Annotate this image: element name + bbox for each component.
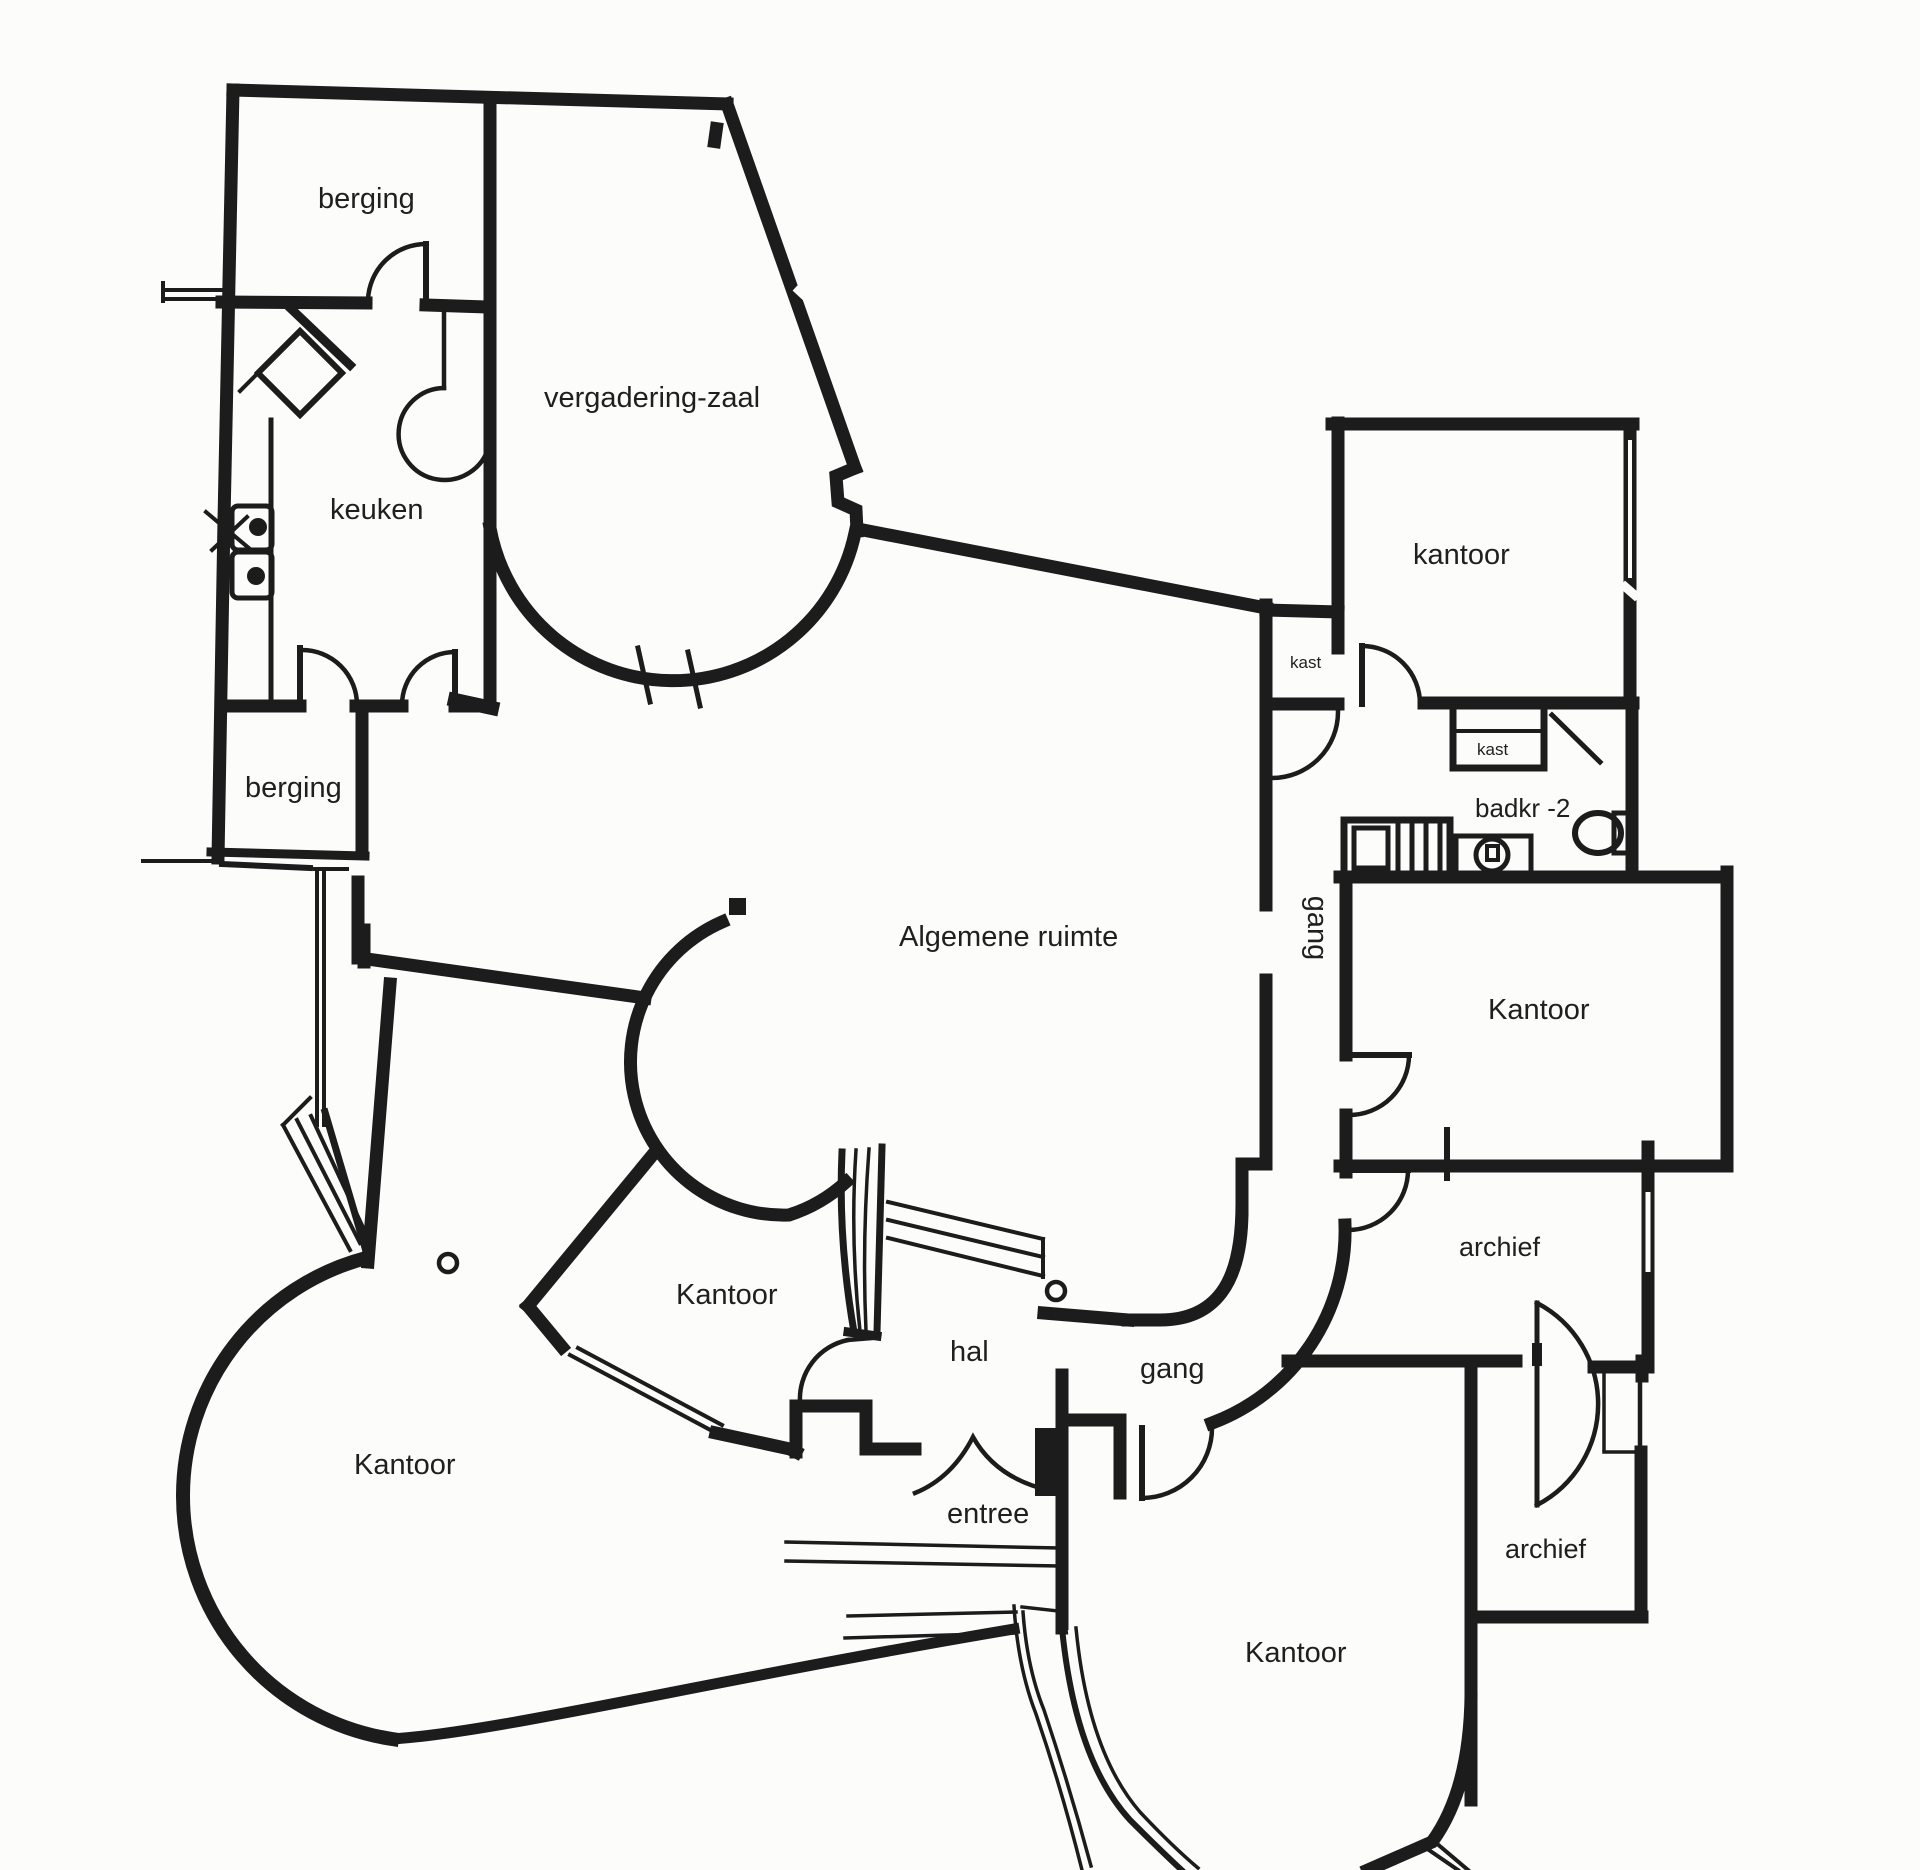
svg-text:entree: entree (947, 1498, 1029, 1530)
svg-text:gang: gang (1140, 1353, 1205, 1385)
svg-text:kast: kast (1477, 740, 1508, 759)
svg-text:berging: berging (318, 183, 415, 215)
svg-text:gang: gang (1301, 896, 1333, 961)
svg-text:Algemene ruimte: Algemene ruimte (899, 921, 1118, 953)
svg-text:archief: archief (1505, 1534, 1587, 1564)
svg-text:Kantoor: Kantoor (1245, 1637, 1347, 1669)
svg-text:berging: berging (245, 772, 342, 804)
svg-text:vergadering-zaal: vergadering-zaal (544, 382, 760, 414)
svg-text:kast: kast (1290, 653, 1321, 672)
svg-text:badkr -2: badkr -2 (1475, 793, 1570, 823)
svg-text:kantoor: kantoor (1413, 539, 1510, 571)
svg-text:archief: archief (1459, 1232, 1541, 1262)
svg-text:Kantoor: Kantoor (676, 1279, 778, 1311)
svg-text:Kantoor: Kantoor (1488, 994, 1590, 1026)
svg-text:Kantoor: Kantoor (354, 1449, 456, 1481)
svg-text:keuken: keuken (330, 494, 424, 526)
svg-text:hal: hal (950, 1336, 989, 1368)
